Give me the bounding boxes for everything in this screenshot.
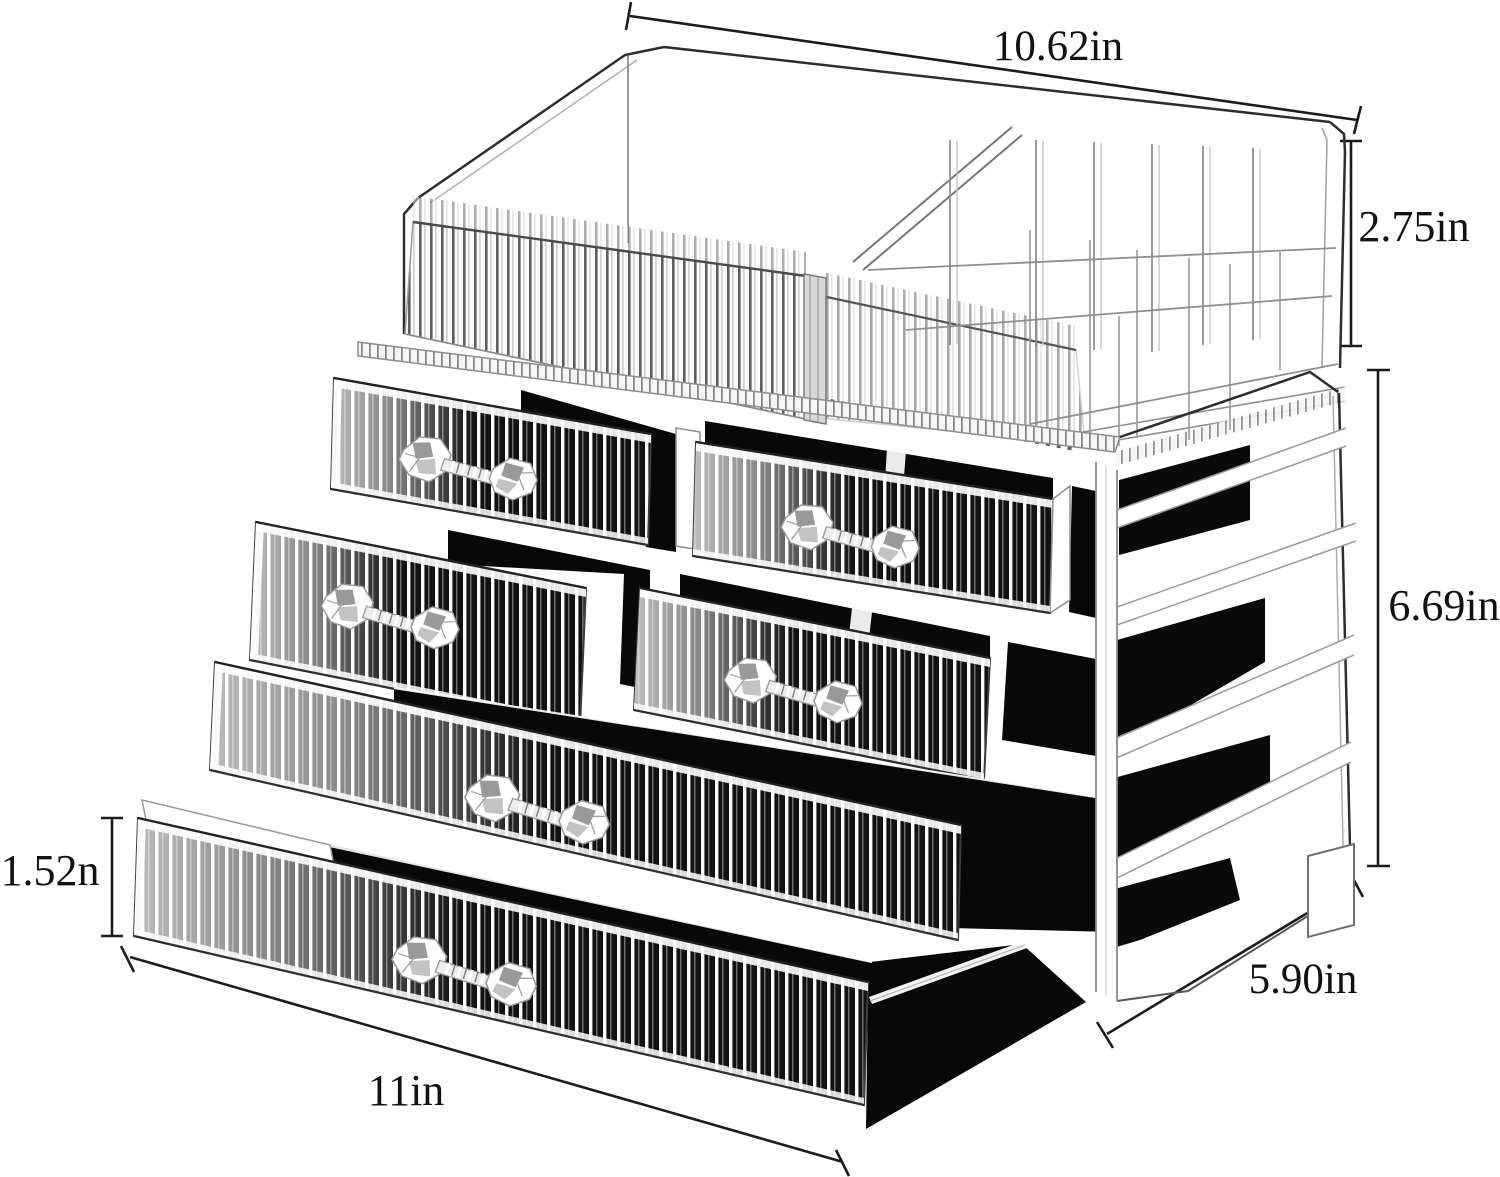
svg-text:5.90in: 5.90in [1249,956,1358,1003]
svg-text:2.75in: 2.75in [1358,202,1469,251]
svg-text:10.62in: 10.62in [993,23,1123,70]
svg-text:11in: 11in [368,1066,445,1115]
svg-text:1.52n: 1.52n [1,846,100,895]
svg-text:6.69in: 6.69in [1388,581,1499,630]
